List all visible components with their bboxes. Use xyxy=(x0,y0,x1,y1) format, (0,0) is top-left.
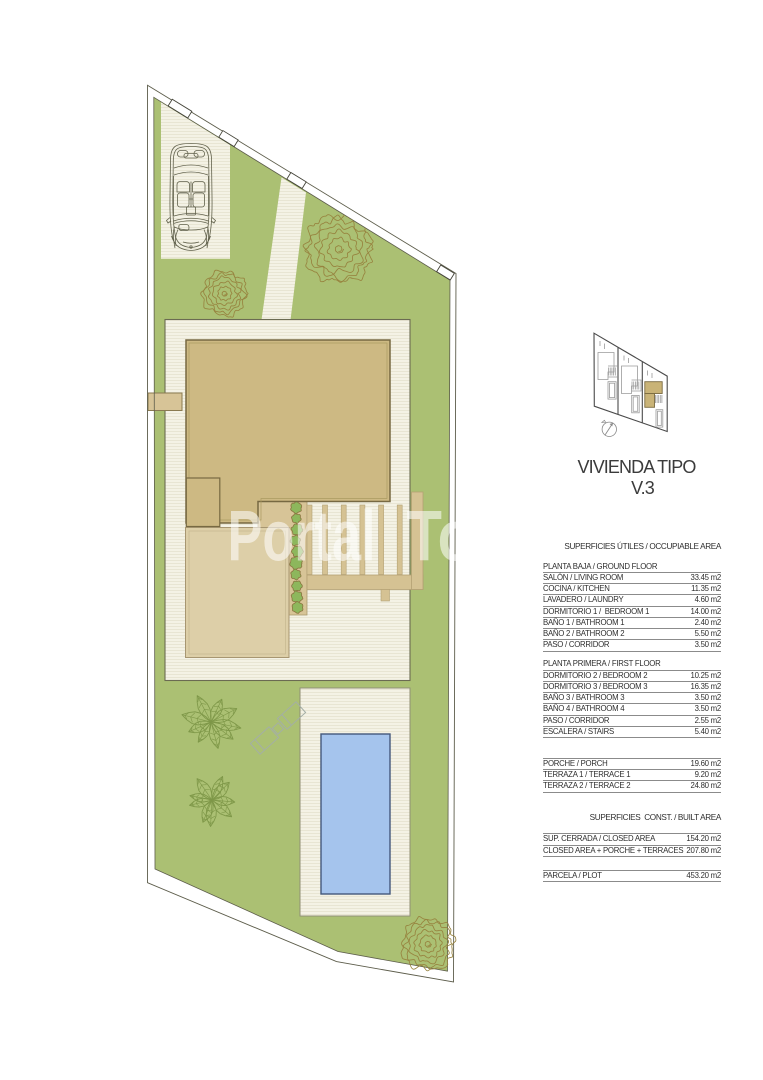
svg-text:Portal: Portal xyxy=(228,498,376,577)
svg-text:Top: Top xyxy=(407,498,509,577)
